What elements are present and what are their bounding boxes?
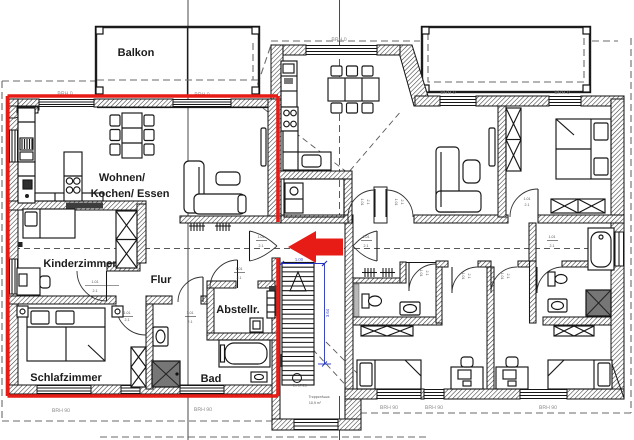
svg-text:1.01: 1.01 [124, 311, 131, 315]
svg-text:2.1: 2.1 [188, 320, 193, 324]
svg-text:BRH 0: BRH 0 [440, 90, 455, 96]
svg-text:BRH 0: BRH 0 [331, 37, 346, 43]
svg-text:Balkon: Balkon [118, 47, 155, 59]
svg-text:Wohnen/: Wohnen/ [99, 172, 145, 184]
svg-text:BRH 90: BRH 90 [194, 407, 212, 413]
svg-text:2.1: 2.1 [550, 244, 555, 248]
svg-text:2.1: 2.1 [525, 203, 530, 207]
svg-text:2.1: 2.1 [237, 276, 242, 280]
svg-text:Flur: Flur [151, 274, 172, 286]
svg-text:2.1: 2.1 [425, 271, 429, 276]
svg-text:1.01: 1.01 [363, 235, 370, 239]
svg-text:BRH 90: BRH 90 [380, 405, 398, 411]
svg-text:2.1: 2.1 [400, 200, 404, 205]
svg-text:1.01: 1.01 [394, 199, 398, 206]
svg-text:Kochen/ Essen: Kochen/ Essen [91, 188, 170, 200]
svg-text:1.01: 1.01 [549, 235, 556, 239]
svg-text:Treppenhaus: Treppenhaus [308, 395, 329, 399]
svg-text:1.00: 1.00 [295, 257, 304, 262]
svg-text:1.01: 1.01 [360, 199, 364, 206]
svg-text:BRH 90: BRH 90 [539, 405, 557, 411]
svg-text:10,9 m²: 10,9 m² [309, 401, 322, 405]
svg-text:Bad: Bad [201, 373, 222, 385]
svg-text:2.1: 2.1 [467, 274, 471, 279]
svg-text:1.01: 1.01 [461, 273, 465, 280]
svg-text:BRH 90: BRH 90 [52, 408, 70, 414]
svg-text:Schlafzimmer: Schlafzimmer [30, 372, 102, 384]
svg-text:1.01: 1.01 [524, 197, 531, 201]
svg-text:BRH 90: BRH 90 [425, 405, 443, 411]
svg-text:2.1: 2.1 [364, 244, 369, 248]
svg-text:1.01: 1.01 [236, 267, 243, 271]
svg-text:2.1: 2.1 [506, 274, 510, 279]
svg-text:2.1: 2.1 [93, 289, 98, 293]
svg-text:1.01: 1.01 [187, 311, 194, 315]
svg-text:2.1: 2.1 [366, 200, 370, 205]
svg-text:1.01: 1.01 [258, 235, 265, 239]
svg-text:1.01: 1.01 [500, 273, 504, 280]
svg-text:Abstellr.: Abstellr. [216, 304, 259, 316]
svg-text:2.1: 2.1 [125, 318, 130, 322]
svg-text:BRH 0: BRH 0 [554, 90, 569, 96]
svg-text:1.01: 1.01 [92, 280, 99, 284]
svg-text:3.64: 3.64 [325, 308, 330, 317]
svg-text:1.01: 1.01 [419, 270, 423, 277]
svg-text:2x 17/28: 2x 17/28 [293, 384, 307, 388]
svg-text:Kinderzimmer: Kinderzimmer [43, 258, 117, 270]
svg-text:2.1: 2.1 [259, 244, 264, 248]
